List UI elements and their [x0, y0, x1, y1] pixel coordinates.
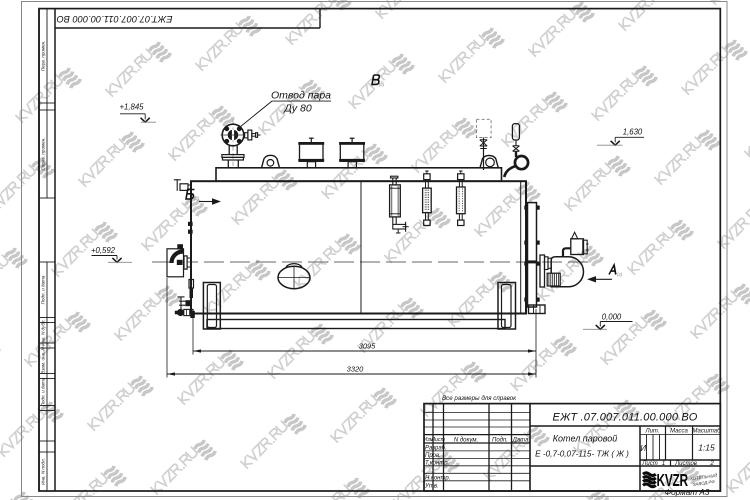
- svg-text:1:15: 1:15: [698, 443, 715, 453]
- svg-text:Инв. N подл.: Инв. N подл.: [41, 458, 46, 485]
- svg-text:Инв. N дубл.: Инв. N дубл.: [41, 319, 46, 346]
- svg-text:Все размеры для справок: Все размеры для справок: [442, 395, 517, 402]
- svg-text:(2): (2): [617, 272, 623, 277]
- svg-text:Подп.: Подп.: [492, 437, 508, 443]
- svg-text:(2): (2): [379, 82, 385, 87]
- svg-text:Подп. и дата: Подп. и дата: [41, 377, 46, 406]
- svg-text:+1,845: +1,845: [119, 103, 144, 112]
- svg-text:3320: 3320: [347, 364, 365, 373]
- svg-text:Справ. примен.: Справ. примен.: [41, 137, 46, 170]
- svg-text:Утв.: Утв.: [424, 484, 439, 490]
- svg-text:И: И: [640, 444, 646, 453]
- svg-text:Лист: Лист: [430, 437, 445, 443]
- svg-text:Лист: Лист: [641, 461, 657, 467]
- svg-text:Отвод пара: Отвод пара: [271, 90, 331, 102]
- svg-text:Котел паровой: Котел паровой: [553, 434, 618, 444]
- svg-text:1: 1: [662, 461, 665, 467]
- svg-text:Взам. инв. N: Взам. инв. N: [41, 346, 46, 373]
- svg-text:Лит.: Лит.: [644, 429, 659, 435]
- svg-text:Листов: Листов: [674, 461, 697, 467]
- svg-text:Е -0,7-0,07-115- ТЖ ( Ж ): Е -0,7-0,07-115- ТЖ ( Ж ): [535, 450, 629, 459]
- svg-text:Подп. и дата: Подп. и дата: [41, 275, 46, 304]
- svg-text:0,000: 0,000: [602, 312, 622, 321]
- svg-text:Масса: Масса: [670, 429, 688, 435]
- svg-text:Масштаб: Масштаб: [692, 429, 721, 435]
- svg-text:Н.контр.: Н.контр.: [425, 476, 450, 482]
- svg-text:N докум.: N докум.: [454, 437, 478, 443]
- svg-text:2: 2: [709, 461, 714, 467]
- svg-text:Разраб.: Разраб.: [425, 446, 447, 452]
- svg-text:+0,592: +0,592: [91, 246, 116, 255]
- svg-text:ЕЖТ .07.007.011.00.000 ВО: ЕЖТ .07.007.011.00.000 ВО: [553, 412, 698, 424]
- svg-text:1,630: 1,630: [623, 128, 643, 137]
- svg-text:3095: 3095: [359, 341, 377, 350]
- svg-text:Ду 80: Ду 80: [283, 103, 312, 115]
- svg-text:Пров.: Пров.: [425, 453, 441, 459]
- svg-text:(2): (2): [194, 196, 200, 201]
- svg-text:Т.контр.: Т.контр.: [425, 461, 449, 467]
- svg-text:Перв. примен.: Перв. примен.: [41, 41, 46, 72]
- svg-text:KVZR: KVZR: [657, 471, 689, 491]
- svg-text:Дата: Дата: [512, 437, 529, 443]
- svg-text:ЕЖТ.07.007.011.00.000 ВО: ЕЖТ.07.007.011.00.000 ВО: [57, 14, 173, 24]
